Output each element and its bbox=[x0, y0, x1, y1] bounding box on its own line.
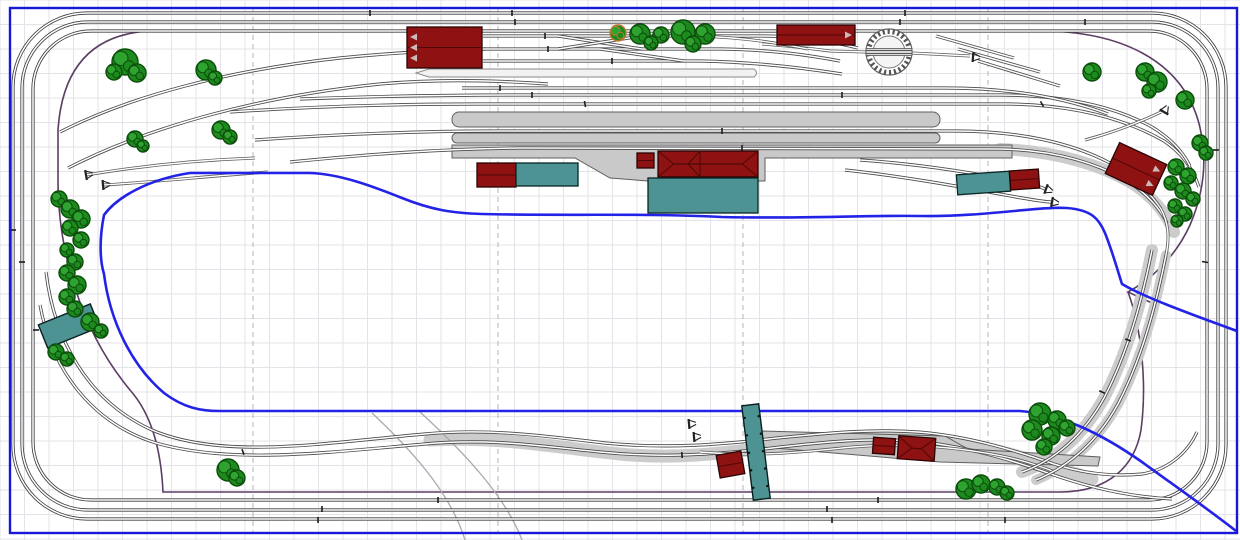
tree-canopy-lobe bbox=[76, 284, 84, 292]
tree[interactable] bbox=[223, 130, 237, 144]
tree-canopy-lobe bbox=[1156, 81, 1164, 89]
tree-canopy-lobe bbox=[1031, 429, 1039, 437]
tree-canopy-lobe bbox=[965, 488, 973, 496]
building-station-annex-teal[interactable] bbox=[516, 163, 578, 186]
tree-canopy-lobe bbox=[660, 34, 667, 41]
tree-canopy-lobe bbox=[1050, 435, 1058, 443]
tree[interactable] bbox=[94, 324, 108, 338]
tree-canopy-lobe bbox=[1187, 175, 1194, 182]
building-station-annex-red[interactable] bbox=[477, 163, 516, 187]
tree-canopy-lobe bbox=[1192, 198, 1198, 204]
platform-1[interactable] bbox=[452, 112, 940, 127]
tree-canopy-lobe bbox=[1039, 413, 1048, 422]
tree-canopy-lobe bbox=[136, 72, 144, 80]
station-hall-body[interactable] bbox=[648, 178, 758, 213]
building-station-hall[interactable] bbox=[648, 178, 758, 213]
building-goods-shed-red[interactable] bbox=[1009, 169, 1039, 190]
trackplan-canvas[interactable] bbox=[0, 0, 1240, 540]
tree[interactable] bbox=[128, 64, 146, 82]
tree-canopy-lobe bbox=[1006, 492, 1012, 498]
tree[interactable] bbox=[1176, 91, 1194, 109]
tree-canopy-lobe bbox=[1091, 71, 1099, 79]
tree-canopy-lobe bbox=[1205, 152, 1211, 158]
tree[interactable] bbox=[1022, 420, 1042, 440]
rail-joint-tick bbox=[1202, 261, 1208, 262]
tree-canopy-lobe bbox=[617, 32, 624, 39]
tree-canopy-lobe bbox=[704, 33, 712, 41]
trackplan-viewport bbox=[0, 0, 1240, 540]
tree-canopy-lobe bbox=[142, 145, 147, 150]
tree-canopy-lobe bbox=[214, 77, 220, 83]
tree-canopy-lobe bbox=[229, 136, 235, 142]
tree-canopy-lobe bbox=[1176, 220, 1181, 225]
tree-canopy-lobe bbox=[236, 477, 243, 484]
goods-hut-big-roof-ridge bbox=[912, 448, 921, 449]
tree-canopy-lobe bbox=[80, 239, 87, 246]
tree[interactable] bbox=[1083, 63, 1101, 81]
building-goods-hut-big[interactable] bbox=[897, 436, 936, 462]
tree[interactable] bbox=[137, 140, 149, 152]
station-annex-teal-body[interactable] bbox=[516, 163, 578, 186]
uncoupler-track[interactable] bbox=[416, 69, 757, 77]
tree-canopy-lobe bbox=[650, 42, 656, 48]
goods-shed-teal-body[interactable] bbox=[956, 171, 1010, 195]
tree[interactable] bbox=[1186, 192, 1200, 206]
turntable-group[interactable] bbox=[866, 29, 912, 75]
tree[interactable] bbox=[610, 25, 626, 41]
tree-canopy-lobe bbox=[100, 330, 106, 336]
tree-canopy-lobe bbox=[1043, 446, 1050, 453]
building-goods-hut-small[interactable] bbox=[872, 437, 895, 454]
tree[interactable] bbox=[1171, 215, 1183, 227]
building-depot-shed[interactable] bbox=[777, 25, 855, 45]
tree[interactable] bbox=[644, 36, 658, 50]
platform-2[interactable] bbox=[452, 133, 940, 143]
tree[interactable] bbox=[685, 36, 701, 52]
tree[interactable] bbox=[1036, 439, 1052, 455]
building-goods-shed-teal[interactable] bbox=[956, 171, 1010, 195]
tree-canopy-lobe bbox=[74, 261, 81, 268]
tree[interactable] bbox=[1000, 486, 1014, 500]
tree-canopy-lobe bbox=[113, 71, 120, 78]
tree-canopy-lobe bbox=[66, 358, 72, 364]
tree-canopy-lobe bbox=[80, 218, 88, 226]
building-small-shed[interactable] bbox=[637, 153, 654, 168]
tree[interactable] bbox=[229, 470, 245, 486]
tree-canopy-lobe bbox=[1184, 213, 1190, 219]
tree[interactable] bbox=[208, 71, 222, 85]
tree-canopy-lobe bbox=[1148, 90, 1154, 96]
building-engine-shed[interactable] bbox=[407, 27, 482, 68]
tree-canopy-lobe bbox=[1184, 99, 1192, 107]
tree-canopy-lobe bbox=[980, 483, 988, 491]
tree[interactable] bbox=[106, 64, 122, 80]
tree-canopy-lobe bbox=[69, 227, 76, 234]
tree[interactable] bbox=[60, 352, 74, 366]
tree-canopy-lobe bbox=[74, 308, 81, 315]
tree[interactable] bbox=[1180, 168, 1196, 184]
tree[interactable] bbox=[73, 232, 89, 248]
tree[interactable] bbox=[67, 301, 83, 317]
tree[interactable] bbox=[972, 475, 990, 493]
turntable-bridge[interactable] bbox=[866, 49, 912, 56]
tree[interactable] bbox=[1059, 420, 1075, 436]
building-station-main[interactable] bbox=[658, 151, 758, 177]
rail-joint-tick bbox=[682, 452, 683, 458]
tree[interactable] bbox=[1142, 84, 1156, 98]
rail-joint-tick bbox=[584, 101, 585, 107]
tree-canopy-lobe bbox=[692, 43, 699, 50]
tree[interactable] bbox=[1199, 146, 1213, 160]
tree-canopy-lobe bbox=[1066, 427, 1073, 434]
building-lineside-hut[interactable] bbox=[716, 451, 745, 478]
